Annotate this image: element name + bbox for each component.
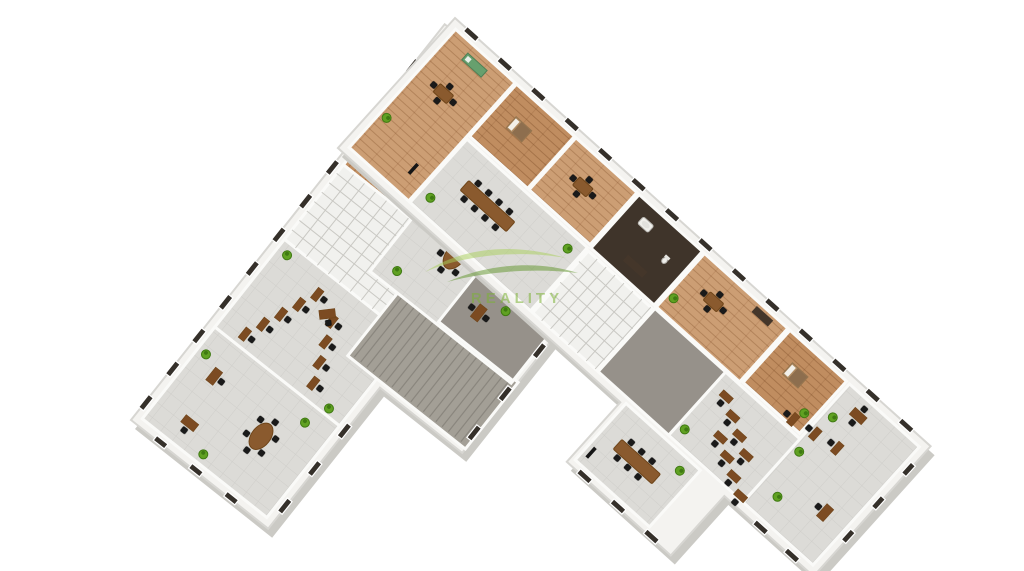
watermark-text: REALITY	[471, 290, 563, 307]
floorplan-canvas: REALITY	[0, 0, 1024, 571]
chair	[325, 320, 332, 327]
floorplan-render: REALITY	[0, 0, 1024, 571]
